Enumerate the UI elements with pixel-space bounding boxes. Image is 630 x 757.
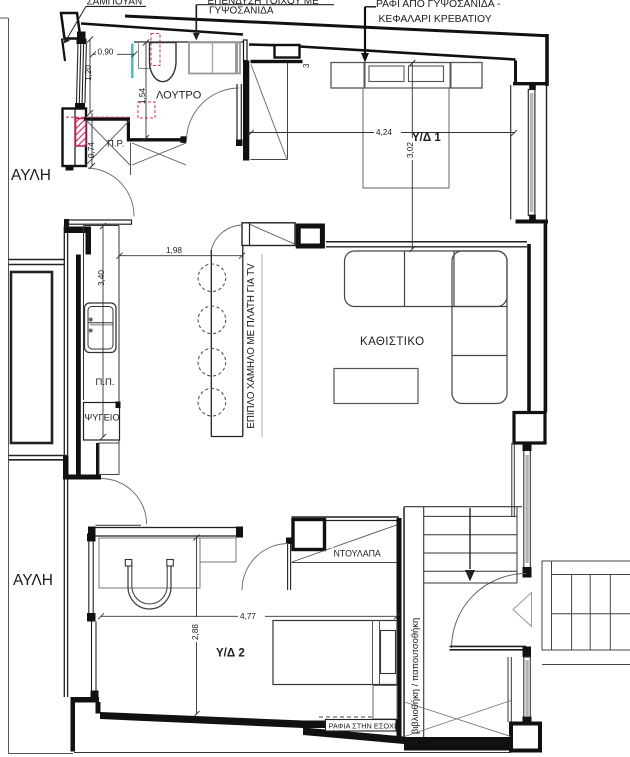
svg-text:ΛΟΥΤΡΟ: ΛΟΥΤΡΟ — [156, 90, 202, 102]
svg-text:ΚΕΦΑΛΑΡΙ ΚΡΕΒΑΤΙΟΥ: ΚΕΦΑΛΑΡΙ ΚΡΕΒΑΤΙΟΥ — [379, 14, 492, 25]
svg-text:1,98: 1,98 — [166, 246, 182, 255]
svg-text:1,54: 1,54 — [138, 88, 147, 104]
svg-text:4,24: 4,24 — [376, 128, 392, 137]
svg-text:ΑΥΛΗ: ΑΥΛΗ — [13, 572, 53, 589]
svg-text:3,02: 3,02 — [406, 142, 415, 158]
svg-text:ΓΥΨΟΣΑΝΙΔΑ: ΓΥΨΟΣΑΝΙΔΑ — [209, 5, 274, 16]
svg-text:ΨΥΓΕΙΟ: ΨΥΓΕΙΟ — [85, 413, 120, 423]
svg-text:ΡΑΦΙ ΑΠΟ ΓΥΨΟΣΑΝΙΔΑ -: ΡΑΦΙ ΑΠΟ ΓΥΨΟΣΑΝΙΔΑ - — [376, 0, 501, 10]
svg-text:ΑΥΛΗ: ΑΥΛΗ — [11, 167, 51, 184]
svg-text:1,20: 1,20 — [84, 65, 93, 81]
svg-text:0,90: 0,90 — [98, 48, 114, 57]
svg-text:3,40: 3,40 — [97, 270, 106, 286]
svg-text:ΡΑΦΙΑ ΣΤΗΝ ΕΣΟΧΗ: ΡΑΦΙΑ ΣΤΗΝ ΕΣΟΧΗ — [329, 722, 400, 731]
svg-text:Π.Ρ.: Π.Ρ. — [107, 139, 124, 150]
svg-text:3: 3 — [302, 63, 311, 68]
svg-text:ΕΠΙΠΛΟ ΧΑΜΗΛΟ ΜΕ ΠΛΑΤΗ ΓΙΑ TV: ΕΠΙΠΛΟ ΧΑΜΗΛΟ ΜΕ ΠΛΑΤΗ ΓΙΑ TV — [246, 263, 257, 429]
svg-text:Υ/Δ 1: Υ/Δ 1 — [412, 132, 441, 144]
svg-text:βιβλιοθήκη / παπουτσοθήκη: βιβλιοθήκη / παπουτσοθήκη — [409, 618, 420, 734]
svg-text:2,88: 2,88 — [191, 624, 200, 640]
svg-text:Υ/Δ 2: Υ/Δ 2 — [216, 648, 245, 660]
svg-text:4,77: 4,77 — [240, 612, 256, 621]
svg-text:ΝΤΟΥΛΑΠΑ: ΝΤΟΥΛΑΠΑ — [334, 549, 381, 559]
svg-text:Π.Π.: Π.Π. — [96, 377, 115, 388]
svg-text:0,74: 0,74 — [87, 142, 96, 158]
svg-text:ΚΑΘΙΣΤΙΚΟ: ΚΑΘΙΣΤΙΚΟ — [360, 336, 424, 348]
